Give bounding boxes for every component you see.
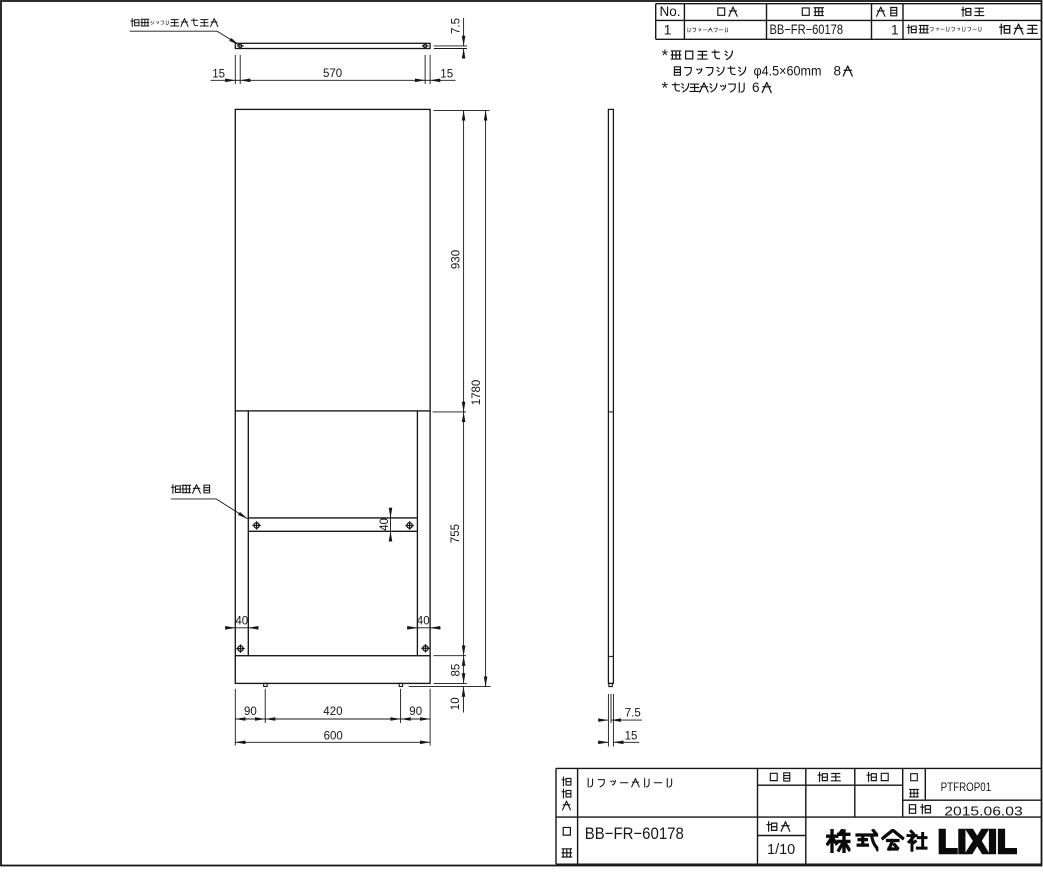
svg-text:φ4.5×60mm: φ4.5×60mm bbox=[754, 64, 822, 79]
svg-text:1: 1 bbox=[891, 22, 899, 38]
svg-text:8: 8 bbox=[834, 64, 842, 79]
svg-text:90: 90 bbox=[409, 706, 422, 718]
svg-text:15: 15 bbox=[440, 69, 453, 81]
svg-text:755: 755 bbox=[450, 524, 462, 543]
svg-text:15: 15 bbox=[625, 730, 638, 742]
svg-text:85: 85 bbox=[451, 664, 463, 677]
svg-text:15: 15 bbox=[212, 69, 225, 81]
svg-text:BB−FR−60178: BB−FR−60178 bbox=[770, 21, 844, 37]
svg-text:40: 40 bbox=[379, 518, 391, 531]
svg-text:No.: No. bbox=[659, 4, 680, 19]
svg-text:7.5: 7.5 bbox=[625, 708, 641, 720]
svg-text:1780: 1780 bbox=[471, 380, 483, 406]
svg-text:*: * bbox=[662, 46, 669, 65]
svg-text:BB−FR−60178: BB−FR−60178 bbox=[585, 824, 684, 843]
svg-text:6: 6 bbox=[752, 80, 760, 95]
svg-text:7.5: 7.5 bbox=[450, 18, 462, 34]
svg-text:*: * bbox=[662, 79, 669, 98]
svg-text:90: 90 bbox=[244, 706, 257, 718]
svg-text:10: 10 bbox=[450, 697, 462, 710]
svg-text:1/10: 1/10 bbox=[767, 842, 795, 858]
svg-text:570: 570 bbox=[323, 68, 342, 80]
svg-text:PTFROP01: PTFROP01 bbox=[941, 782, 992, 794]
svg-text:LIXIL: LIXIL bbox=[938, 823, 1017, 860]
svg-text:930: 930 bbox=[450, 250, 462, 269]
svg-text:600: 600 bbox=[324, 730, 343, 742]
svg-text:2015.06.03: 2015.06.03 bbox=[944, 804, 1022, 819]
svg-text:1: 1 bbox=[664, 22, 672, 38]
svg-text:40: 40 bbox=[235, 616, 248, 628]
svg-text:420: 420 bbox=[323, 706, 342, 718]
svg-text:40: 40 bbox=[417, 616, 430, 628]
